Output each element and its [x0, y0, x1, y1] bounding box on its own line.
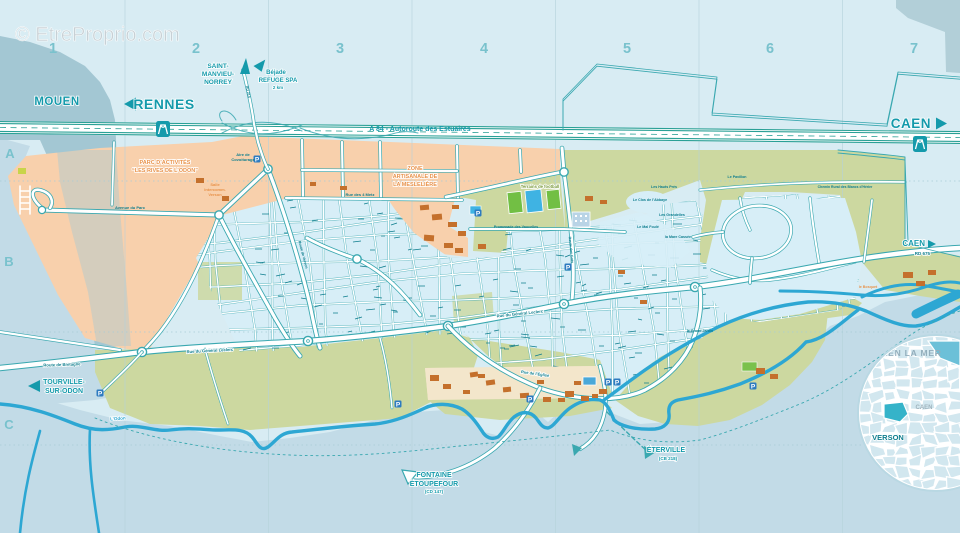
svg-text:REFUGE SPA: REFUGE SPA: [259, 78, 298, 84]
svg-text:Promenade des Vaucelles: Promenade des Vaucelles: [494, 225, 538, 229]
svg-text:Covoiturage: Covoiturage: [231, 157, 255, 162]
svg-text:(CD 147): (CD 147): [425, 489, 444, 494]
svg-text:P: P: [751, 384, 756, 391]
svg-text:RD 675: RD 675: [915, 251, 931, 256]
svg-text:CAEN: CAEN: [891, 116, 931, 131]
svg-text:LA MESLELIÈRE: LA MESLELIÈRE: [393, 180, 437, 188]
svg-text:(CB 218): (CB 218): [659, 456, 678, 461]
svg-text:P: P: [606, 380, 611, 387]
svg-text:PARC D’ACTIVITÉS: PARC D’ACTIVITÉS: [140, 158, 191, 166]
svg-text:5: 5: [623, 41, 631, 57]
svg-text:3: 3: [336, 41, 344, 57]
svg-text:CAEN: CAEN: [915, 405, 932, 411]
svg-text:VERSON: VERSON: [872, 433, 904, 442]
svg-text:A 84 - Autoroute des Estuaires: A 84 - Autoroute des Estuaires: [369, 126, 471, 133]
svg-text:© EtreProprio.com: © EtreProprio.com: [15, 24, 180, 46]
svg-text:la Mare Cassée: la Mare Cassée: [665, 235, 691, 239]
svg-text:P: P: [255, 157, 260, 164]
svg-text:ÉTERVILLE: ÉTERVILLE: [647, 445, 686, 454]
svg-text:Le Clos de l’Abbaye: Le Clos de l’Abbaye: [633, 198, 667, 202]
svg-text:4: 4: [480, 41, 488, 57]
svg-text:7: 7: [910, 41, 918, 57]
svg-text:2: 2: [192, 41, 200, 57]
svg-text:Avenue du Parc: Avenue du Parc: [115, 205, 146, 210]
svg-text:Les Hauts Prés: Les Hauts Prés: [651, 185, 677, 189]
svg-text:RENNES: RENNES: [133, 96, 194, 112]
svg-text:1: 1: [49, 41, 57, 57]
svg-text:C: C: [4, 417, 14, 432]
svg-text:P: P: [566, 265, 571, 272]
svg-text:Rue des 4 Metz: Rue des 4 Metz: [346, 192, 375, 197]
svg-text:P: P: [615, 380, 620, 387]
svg-text:MANVIEU-: MANVIEU-: [202, 71, 234, 78]
svg-text:ZONE: ZONE: [407, 166, 423, 172]
svg-text:P: P: [98, 391, 103, 398]
svg-text:Béjade: Béjade: [266, 70, 286, 76]
svg-text:SAINT-: SAINT-: [207, 63, 228, 70]
svg-text:6: 6: [766, 41, 774, 57]
svg-text:P: P: [396, 402, 401, 409]
svg-text:Terrains de football: Terrains de football: [521, 184, 560, 189]
svg-text:FONTAINE: FONTAINE: [416, 472, 452, 479]
svg-text:P: P: [476, 211, 481, 218]
svg-text:CAEN: CAEN: [902, 239, 925, 248]
svg-text:Les Grandelles: Les Grandelles: [659, 213, 685, 217]
svg-text:ÉTOUPEFOUR: ÉTOUPEFOUR: [410, 479, 459, 488]
svg-text:le Bosquet: le Bosquet: [859, 285, 878, 289]
svg-text:Le Mal Foulé: Le Mal Foulé: [637, 225, 659, 229]
svg-text:le Grand Jardin: le Grand Jardin: [687, 329, 713, 333]
svg-text:Le Pavillon: Le Pavillon: [728, 175, 747, 179]
svg-text:P: P: [528, 397, 533, 404]
svg-text:B: B: [4, 254, 13, 269]
svg-text:2 km: 2 km: [273, 85, 283, 90]
svg-text:NORREY: NORREY: [204, 79, 232, 86]
svg-text:Chemin Rural des Blancs d’Héri: Chemin Rural des Blancs d’Hérier: [818, 185, 873, 189]
svg-text:“LES RIVES DE L’ODON”: “LES RIVES DE L’ODON”: [132, 168, 198, 174]
svg-text:MOUEN: MOUEN: [34, 96, 79, 108]
svg-text:TOURVILLE-: TOURVILLE-: [43, 379, 85, 386]
svg-text:Verson: Verson: [208, 192, 222, 197]
svg-text:A: A: [5, 146, 15, 161]
svg-text:SUR-ODON: SUR-ODON: [45, 388, 83, 395]
svg-text:ARTISANALE DE: ARTISANALE DE: [393, 174, 438, 180]
